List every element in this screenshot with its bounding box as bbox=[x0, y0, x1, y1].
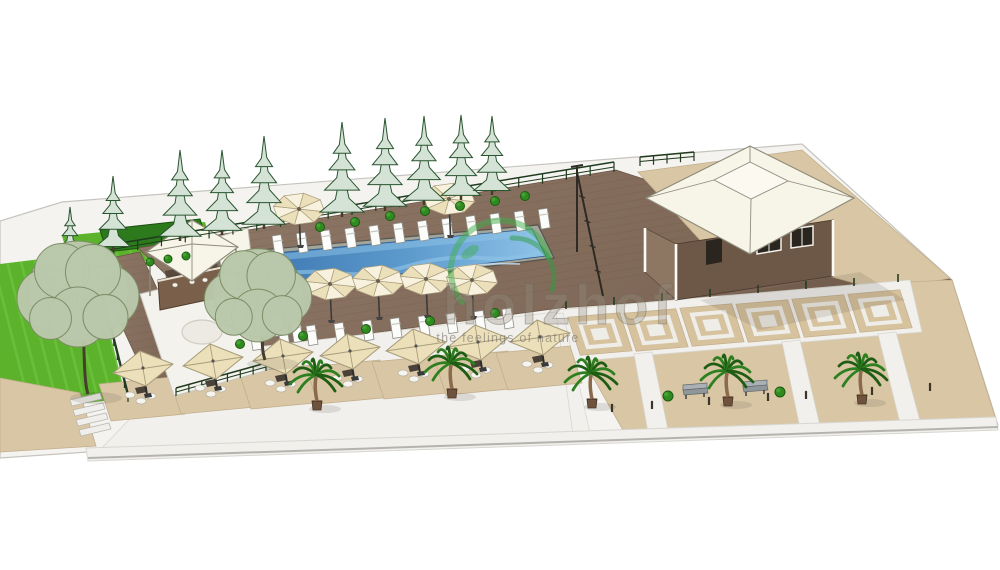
bush bbox=[491, 197, 500, 206]
bush bbox=[299, 332, 308, 341]
bush bbox=[146, 258, 154, 266]
bush bbox=[426, 317, 435, 326]
bush bbox=[236, 340, 245, 349]
bush bbox=[663, 391, 673, 401]
watermark-brand: holzhof bbox=[443, 273, 677, 336]
bush bbox=[456, 202, 465, 211]
bush bbox=[164, 255, 172, 263]
bush bbox=[316, 223, 325, 232]
bollard bbox=[651, 401, 653, 409]
bollard bbox=[767, 393, 769, 401]
site-plan-rendering: holzhofthe feelings of nature bbox=[0, 0, 1000, 570]
bush bbox=[775, 387, 785, 397]
bollard bbox=[708, 397, 710, 405]
bollard bbox=[805, 391, 807, 399]
bollard bbox=[871, 387, 873, 395]
bush bbox=[182, 252, 190, 260]
bush bbox=[521, 192, 530, 201]
rendering-canvas: holzhofthe feelings of nature bbox=[0, 0, 1000, 570]
bush bbox=[351, 218, 360, 227]
bush bbox=[386, 212, 395, 221]
bollard bbox=[929, 383, 931, 391]
watermark-tagline: the feelings of nature bbox=[436, 331, 579, 345]
bush bbox=[421, 207, 430, 216]
bush bbox=[362, 325, 371, 334]
